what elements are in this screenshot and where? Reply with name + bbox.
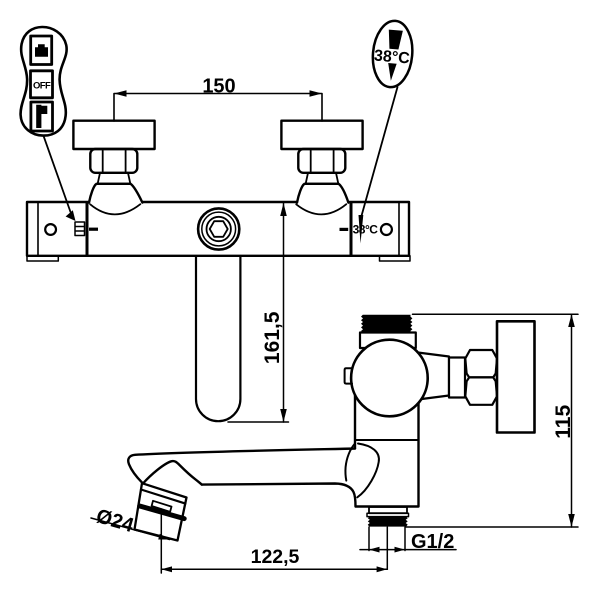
svg-text:G1/2: G1/2 — [411, 531, 454, 553]
svg-text:OFF: OFF — [33, 80, 51, 91]
svg-text:115: 115 — [552, 405, 575, 439]
svg-text:Ø24: Ø24 — [94, 505, 137, 537]
svg-text:161,5: 161,5 — [261, 311, 284, 364]
svg-text:122,5: 122,5 — [251, 546, 300, 568]
svg-text:38°C: 38°C — [353, 223, 379, 237]
svg-text:150: 150 — [202, 75, 235, 97]
